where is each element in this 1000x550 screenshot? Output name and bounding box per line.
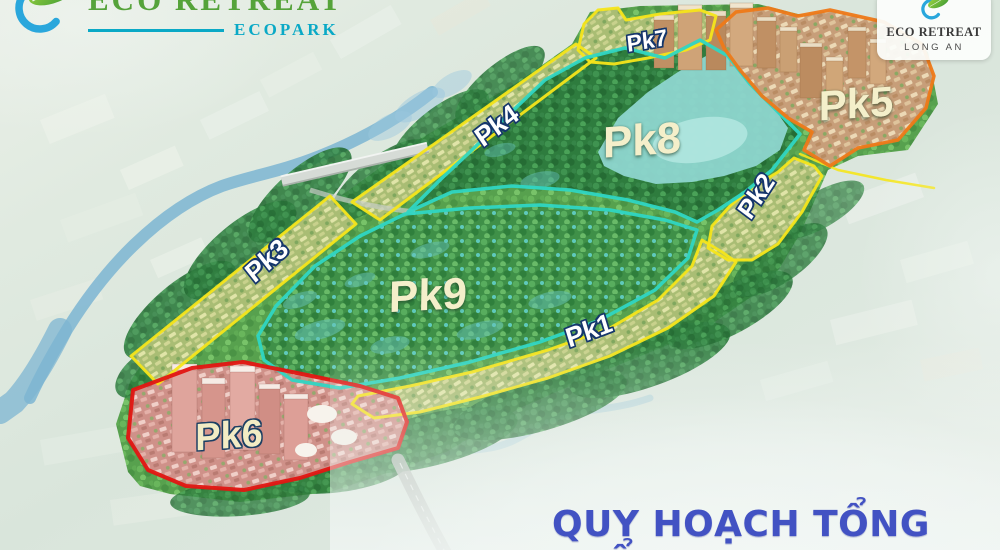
- badge-leaf-logo-icon: [917, 0, 951, 23]
- zone-label-pk6: Pk6: [195, 415, 262, 458]
- zone-label-pk5: Pk5: [819, 80, 894, 127]
- brand-logo: ECO RETREAT ECOPARK: [10, 0, 344, 44]
- zone-label-pk9: Pk9: [389, 272, 468, 320]
- zone-label-pk8: Pk8: [603, 116, 681, 166]
- logo-text: ECO RETREAT ECOPARK: [88, 0, 344, 40]
- plan-title: QUY HOẠCH TỔNG THỂ: [552, 504, 998, 550]
- logo-title: ECO RETREAT: [88, 0, 344, 18]
- badge-title: ECO RETREAT: [886, 25, 981, 40]
- badge-subtitle: LONG AN: [904, 42, 964, 53]
- eco-retreat-leaf-logo-icon: [10, 0, 82, 44]
- logo-subtitle: ECOPARK: [234, 20, 339, 40]
- south-road: [398, 460, 447, 550]
- logo-divider: [88, 29, 224, 32]
- project-badge: ECO RETREAT LONG AN: [877, 0, 991, 60]
- master-plan-canvas: Pk7 Pk4 Pk3 Pk2 Pk1 Pk8 Pk9 Pk5 Pk6 ECO …: [0, 0, 1000, 550]
